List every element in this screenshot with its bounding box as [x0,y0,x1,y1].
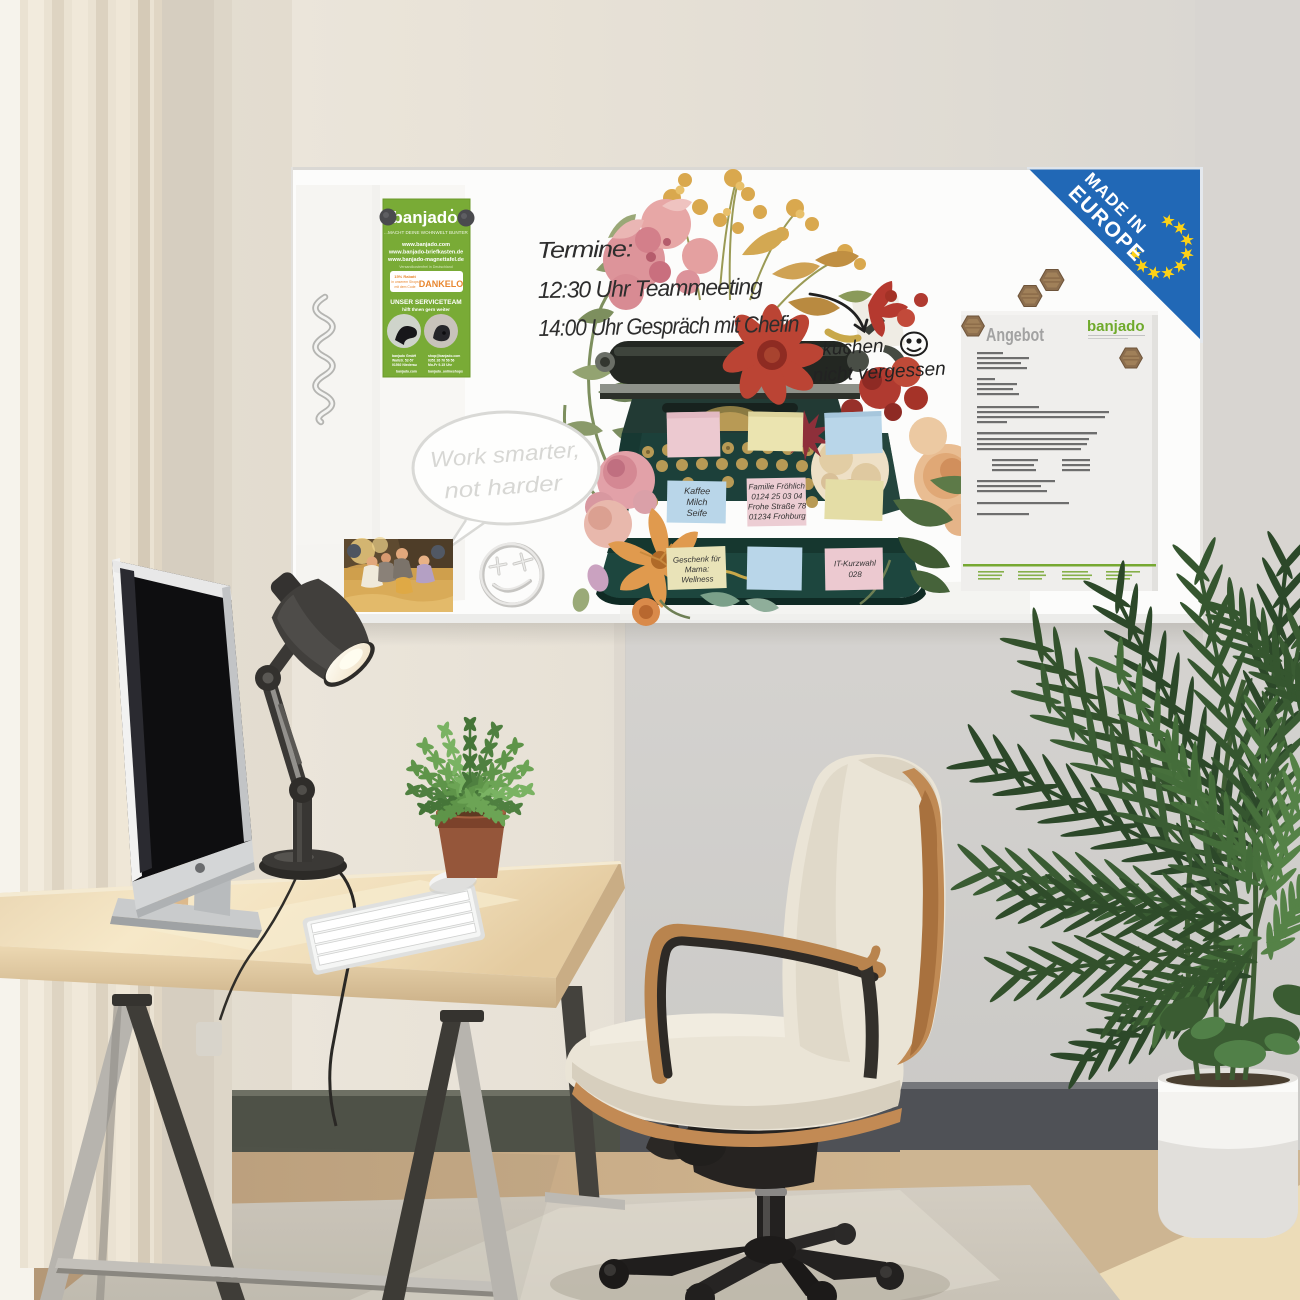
svg-text:Mama:: Mama: [685,565,710,575]
svg-text:14:00 Uhr Gespräch mit Chefin: 14:00 Uhr Gespräch mit Chefin [538,310,799,341]
svg-text:banjado GmbH: banjado GmbH [392,354,417,358]
svg-text:banjado: banjado [1087,318,1145,335]
svg-text:Milch: Milch [686,497,707,507]
svg-text:Angebot: Angebot [986,325,1044,345]
svg-text:Versandkostenfrei in Deutschla: Versandkostenfrei in Deutschland [399,265,453,269]
svg-text:01592 Niederau: 01592 Niederau [392,363,417,367]
svg-text:...MACHT DEINE WOHNWELT BUNTER: ...MACHT DEINE WOHNWELT BUNTER [384,230,468,235]
svg-text:01234 Frohburg: 01234 Frohburg [749,511,807,521]
svg-text:UNSER SERVICETEAM: UNSER SERVICETEAM [390,299,461,306]
svg-text:Kaffee: Kaffee [684,486,710,496]
svg-text:kuchen: kuchen [822,336,884,360]
svg-text:Wellness: Wellness [681,574,714,584]
svg-text:12:30 Uhr Teammeeting: 12:30 Uhr Teammeeting [538,273,764,303]
svg-text:Seife: Seife [686,508,707,518]
svg-text:Termine:: Termine: [537,235,633,263]
svg-text:Frohe Straße 78: Frohe Straße 78 [748,501,807,511]
svg-text:www.banjado-briefkasten.de: www.banjado-briefkasten.de [388,250,463,256]
svg-text:0124 25 03 04: 0124 25 03 04 [751,492,803,502]
svg-text:hilft Ihnen gern weiter: hilft Ihnen gern weiter [402,307,450,312]
svg-text:0351 26 76 56 56: 0351 26 76 56 56 [428,359,455,363]
svg-text:Mo-Fr 9-15 Uhr: Mo-Fr 9-15 Uhr [428,363,453,367]
svg-text:banjado: banjado [392,208,457,227]
svg-text:shop@banjado.com: shop@banjado.com [428,354,460,358]
svg-text:15% Rabatt: 15% Rabatt [394,274,416,279]
svg-text:banjado.com: banjado.com [396,370,417,374]
svg-text:IT-Kurzwahl: IT-Kurzwahl [834,559,876,569]
svg-text:banjado_onlineshops: banjado_onlineshops [428,370,463,374]
svg-text:in unserem Shops: in unserem Shops [391,280,419,284]
svg-text:www.banjado.com: www.banjado.com [401,242,450,248]
svg-text:028: 028 [848,570,862,579]
svg-text:www.banjado-magnettafel.de: www.banjado-magnettafel.de [387,257,464,263]
svg-text:Geschenk für: Geschenk für [673,554,721,565]
svg-text:Wallstr. 52-57: Wallstr. 52-57 [392,359,414,363]
svg-text:DANKELO: DANKELO [419,279,464,289]
svg-text:Familie Fröhlich: Familie Fröhlich [748,481,805,491]
svg-text:mit dem Code: mit dem Code [394,285,415,289]
